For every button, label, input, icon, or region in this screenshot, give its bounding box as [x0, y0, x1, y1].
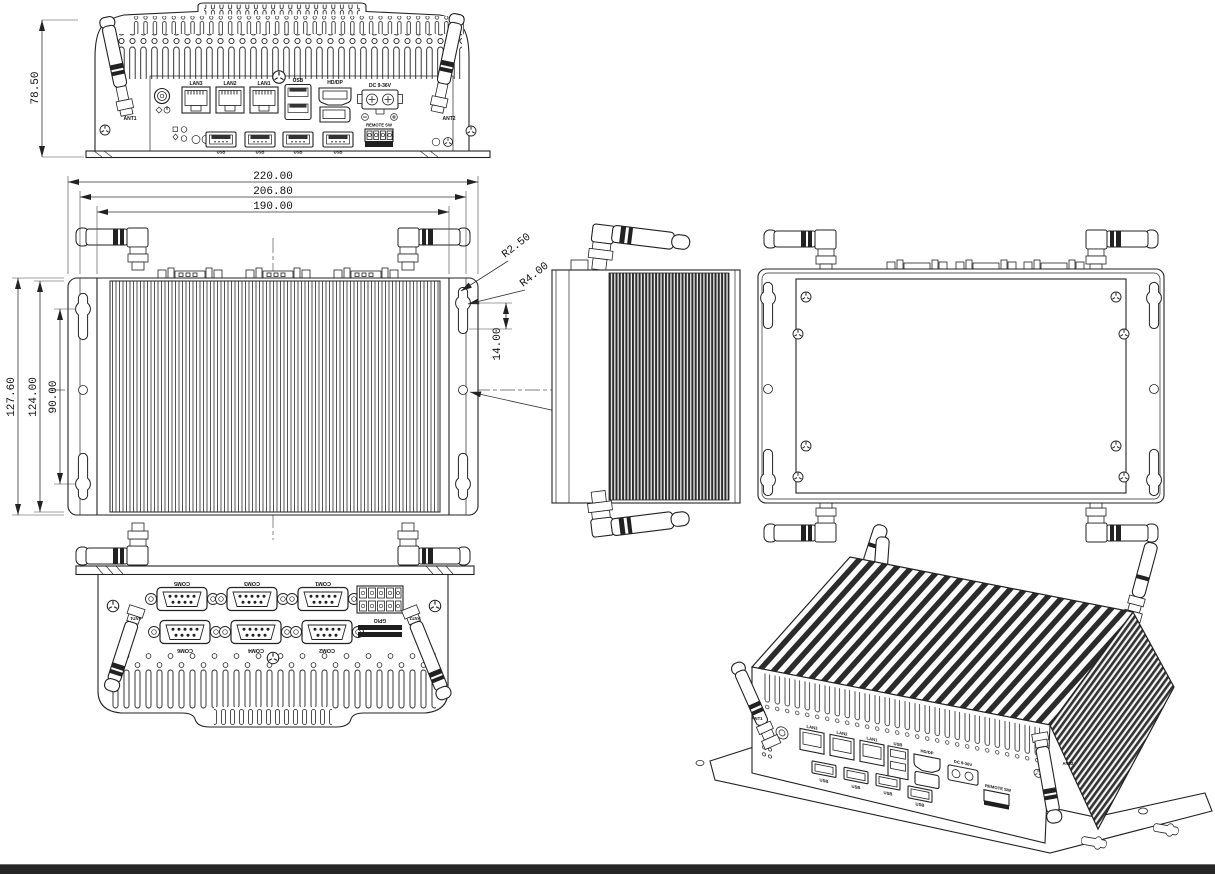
front-base-plate	[86, 151, 490, 158]
side-heatsink-fins	[609, 273, 729, 500]
mount-hole-right	[459, 386, 468, 395]
rear-tab-vents	[214, 707, 332, 725]
dim-190-label: 190.00	[253, 201, 293, 213]
usb4-label: USB	[334, 150, 343, 155]
dim-124-label: 124.00	[28, 377, 40, 417]
com3-label: COM3	[244, 580, 260, 586]
ant2-label: ANT2	[442, 116, 455, 122]
remote-sw-terminal: REMOTE SW	[365, 123, 393, 148]
ant3-label: ANT3	[409, 616, 421, 621]
isometric-view: LAN3 LAN2 LAN1 USB HD/DP DC 9-36V REMOTE…	[700, 535, 1215, 871]
ant4-label: ANT4	[130, 616, 142, 621]
lan1-label: LAN1	[257, 81, 270, 87]
com5-label: COM5	[174, 580, 190, 586]
front-dimension-78-50: 78.50	[30, 20, 84, 157]
mount-hole-left	[79, 386, 88, 395]
top-antenna-tr	[398, 228, 470, 270]
bottom-edge-bumps	[887, 260, 1084, 269]
dc-label: DC 9-36V	[369, 83, 392, 89]
front-screw-right2	[444, 138, 453, 147]
iso-antenna-back-right	[1123, 541, 1161, 623]
ant1-label: ANT1	[123, 116, 136, 122]
top-edge-bumps	[158, 268, 398, 278]
front-top-vent-row	[204, 5, 360, 15]
dim-height-label: 78.50	[30, 71, 42, 104]
iso-ant1-label: ANT1	[752, 716, 764, 721]
iso-hole-left	[696, 760, 704, 765]
dim-127-label: 127.60	[6, 377, 18, 417]
bottom-hole-left	[764, 385, 773, 394]
remote-sw-label: REMOTE SW	[366, 123, 392, 128]
usb1-label: USB	[217, 150, 226, 155]
side-body	[552, 270, 740, 503]
com1-port	[287, 588, 360, 611]
technical-drawing-canvas: 78.50 LAN3 LAN2 LAN1 USB HD/DP DC 9-3	[0, 0, 1215, 874]
com4-port	[220, 621, 293, 644]
dim-206-label: 206.80	[253, 186, 293, 198]
gpio-label: GPIO	[374, 617, 387, 623]
bottom-plate	[758, 269, 1164, 503]
lan2-label: LAN2	[223, 81, 236, 87]
bottom-view	[738, 203, 1215, 558]
front-vent-row2	[130, 16, 464, 36]
usb2-label: USB	[256, 150, 265, 155]
usb-top-label: USB	[293, 78, 304, 84]
lan3-label: LAN3	[189, 81, 202, 87]
com5-port	[146, 588, 219, 611]
bottom-hole-right	[1150, 385, 1159, 394]
lan1-port	[250, 87, 278, 113]
com2-label: COM2	[319, 647, 335, 653]
com3-port	[216, 588, 289, 611]
usb-port-2	[245, 132, 275, 147]
com1-label: COM1	[315, 580, 331, 586]
bottom-bar	[0, 864, 1215, 874]
usb-port-1	[206, 132, 236, 147]
side-view	[533, 203, 751, 558]
front-main-vents	[112, 34, 462, 79]
rear-view: COM5 COM3 COM1 COM6 COM4 COM2 GPIO ANT4 …	[66, 546, 484, 768]
iso-ant2-label: ANT2	[1063, 761, 1075, 766]
com4-label: COM4	[247, 647, 264, 653]
usb-port-4	[323, 132, 353, 147]
dim-220-label: 220.00	[253, 171, 293, 183]
r250-label: R2.50	[500, 231, 533, 261]
iso-hole	[1139, 808, 1148, 814]
com6-port	[149, 621, 222, 644]
gpio-terminal: GPIO	[357, 586, 403, 637]
usb-port-3	[283, 132, 313, 147]
lan2-port	[216, 87, 244, 113]
com2-port	[291, 621, 364, 644]
top-heatsink-fins	[110, 281, 440, 512]
bottom-antenna-tl	[764, 230, 836, 272]
side-top-bump	[571, 260, 588, 270]
hddp-label: HD/DP	[327, 80, 343, 86]
rear-base-plate	[76, 566, 474, 575]
front-screw-right	[466, 126, 476, 136]
bottom-antenna-tr	[1086, 230, 1158, 272]
lan3-port	[182, 87, 210, 113]
dim-14-label: 14.00	[492, 327, 504, 360]
com6-label: COM6	[177, 647, 193, 653]
front-screw-left	[100, 125, 110, 135]
usb3-label: USB	[294, 150, 303, 155]
top-antenna-tl	[76, 228, 148, 270]
usb-stack-port	[285, 85, 311, 120]
front-view: 78.50 LAN3 LAN2 LAN1 USB HD/DP DC 9-3	[28, 0, 494, 170]
dim-90-label: 90.00	[48, 380, 60, 413]
